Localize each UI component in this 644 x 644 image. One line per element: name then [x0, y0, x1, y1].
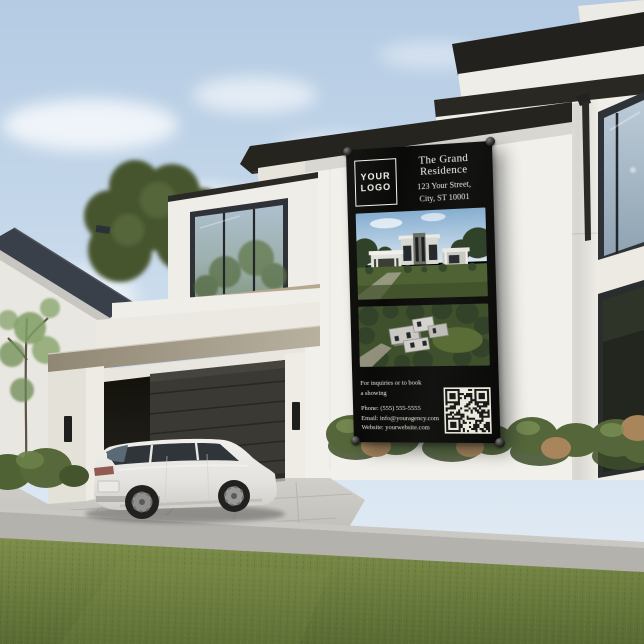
website-line: Website: yourwebsite.com — [361, 423, 439, 433]
grommet-icon — [495, 438, 505, 447]
scene-background — [0, 0, 644, 644]
car-wheel-front — [218, 480, 250, 512]
logo-placeholder: YOUR LOGO — [354, 158, 397, 207]
house-photo-scene: YOUR LOGO The Grand Residence 123 Your S… — [0, 0, 644, 644]
right-window-upper — [598, 92, 644, 264]
car-wheel-rear — [125, 485, 159, 519]
property-name: The Grand Residence — [403, 152, 484, 179]
wall-sconce-right — [292, 402, 300, 430]
banner-photo-aerial — [358, 303, 490, 366]
contact-block: For inquiries or to book a showing Phone… — [360, 378, 439, 433]
grommet-icon — [343, 147, 352, 157]
inquiry-line2: a showing — [360, 388, 438, 398]
banner-header: YOUR LOGO The Grand Residence 123 Your S… — [354, 148, 485, 212]
banner-photo-exterior — [356, 207, 488, 299]
inquiry-line1: For inquiries or to book — [360, 378, 438, 388]
license-plate — [98, 481, 119, 492]
phone-line: Phone: (555) 555-5555 — [361, 404, 439, 414]
real-estate-banner: YOUR LOGO The Grand Residence 123 Your S… — [346, 141, 501, 443]
grommet-icon — [351, 436, 360, 445]
logo-line2: LOGO — [361, 182, 392, 195]
qr-code — [443, 387, 491, 434]
banner-footer: For inquiries or to book a showing Phone… — [360, 365, 492, 436]
wall-sconce-left — [64, 416, 72, 442]
email-line: Email: info@youragency.com — [361, 414, 439, 424]
